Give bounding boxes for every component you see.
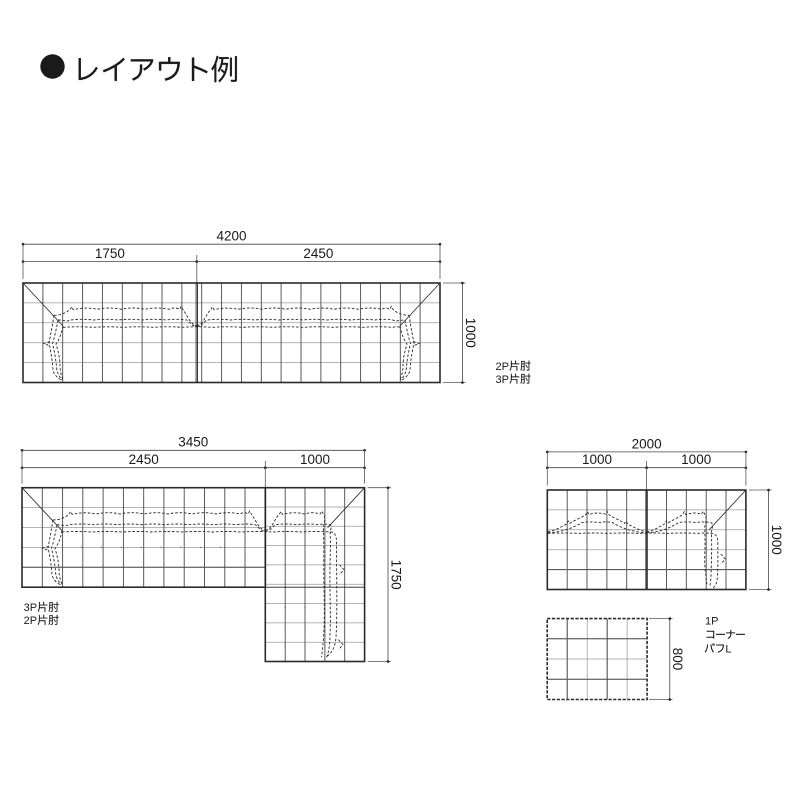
svg-text:2450: 2450 xyxy=(129,452,159,467)
svg-text:1000: 1000 xyxy=(681,452,711,467)
svg-text:1750: 1750 xyxy=(95,246,125,261)
svg-text:4200: 4200 xyxy=(216,229,246,244)
svg-text:2P: 2P xyxy=(24,615,37,627)
svg-text:2000: 2000 xyxy=(632,436,662,451)
svg-text:3P: 3P xyxy=(24,602,37,614)
svg-text:2450: 2450 xyxy=(303,246,333,261)
svg-text:1000: 1000 xyxy=(463,318,478,348)
svg-text:1750: 1750 xyxy=(388,560,403,590)
svg-text:1000: 1000 xyxy=(582,452,612,467)
svg-text:2P: 2P xyxy=(496,361,509,373)
svg-text:3P: 3P xyxy=(496,374,509,386)
svg-text:3450: 3450 xyxy=(178,435,208,450)
svg-text:L: L xyxy=(725,644,731,656)
svg-text:1000: 1000 xyxy=(300,452,330,467)
svg-text:1P: 1P xyxy=(705,616,718,628)
svg-text:1000: 1000 xyxy=(769,525,784,555)
svg-text:800: 800 xyxy=(670,648,685,671)
